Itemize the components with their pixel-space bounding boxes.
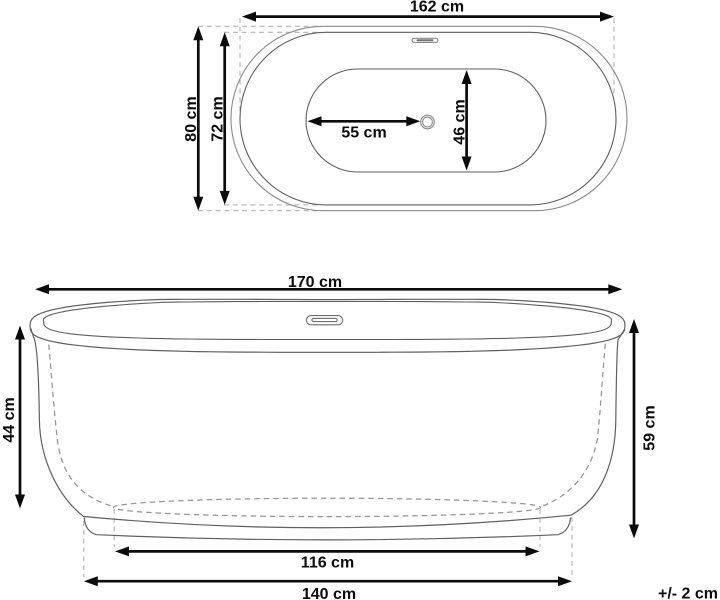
- svg-text:44 cm: 44 cm: [1, 397, 18, 442]
- svg-text:72 cm: 72 cm: [210, 96, 227, 141]
- svg-text:80 cm: 80 cm: [183, 96, 200, 141]
- svg-text:+/- 2 cm: +/- 2 cm: [658, 586, 718, 600]
- svg-text:116 cm: 116 cm: [301, 555, 354, 572]
- svg-text:140 cm: 140 cm: [302, 586, 356, 600]
- svg-text:162 cm: 162 cm: [410, 0, 464, 16]
- svg-text:55 cm: 55 cm: [341, 125, 386, 142]
- svg-text:59 cm: 59 cm: [642, 405, 659, 450]
- svg-text:46 cm: 46 cm: [452, 99, 469, 144]
- svg-text:170 cm: 170 cm: [288, 274, 342, 291]
